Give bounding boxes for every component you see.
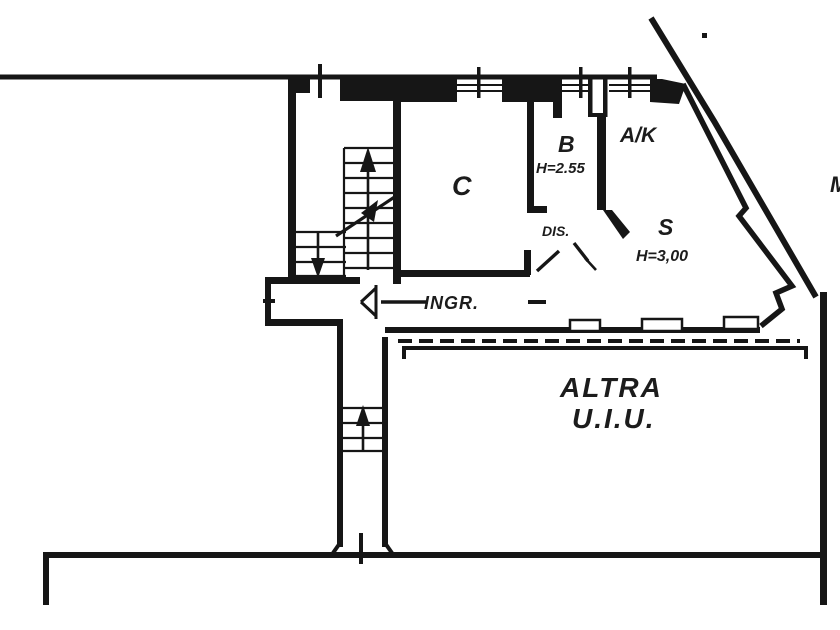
wall-opening-2 [642, 319, 682, 331]
hall-top-wall-left [265, 277, 360, 284]
room-c-bottom-wall [401, 270, 530, 277]
altra-label-line2: U.I.U. [572, 403, 656, 434]
door-leaf-c [537, 251, 559, 271]
window-3-tick [628, 67, 632, 98]
right-outer-wall [820, 292, 827, 605]
edge-letter-fragment: M [830, 172, 840, 197]
corridor-right-wall [382, 337, 388, 547]
window-1 [454, 67, 505, 98]
dis-corner-wall [527, 206, 547, 213]
boundary-dot [702, 33, 707, 38]
facade-corner-to-diagonal [650, 79, 686, 104]
threshold-dash-mid [528, 300, 546, 304]
corridor-left-wall [337, 326, 343, 547]
party-wall [385, 317, 800, 341]
stairwell [296, 79, 401, 284]
room-b-height-note: H=2.55 [536, 160, 585, 177]
site-boundary [0, 18, 816, 297]
wall-opening-3 [724, 317, 758, 329]
s-door-jamb [603, 210, 630, 239]
c-b-dividing-wall [527, 98, 534, 210]
corridor-arrow-up-icon [356, 405, 370, 452]
wall-opening-1 [570, 320, 600, 331]
wall-tick-1 [318, 64, 322, 98]
wall-tick-bottom [359, 533, 363, 564]
facade-step [296, 79, 310, 93]
hall-bottom-wall-left [265, 319, 343, 326]
window-1-tick [477, 67, 481, 98]
hall-top-wall-jamb [393, 277, 401, 284]
b-ak-dividing-wall [597, 117, 606, 210]
outer-walls-bottom-right [43, 292, 827, 605]
stair-arrow-down-icon [311, 233, 325, 278]
room-c-label: C [452, 171, 472, 201]
stair-c-dividing-wall [393, 79, 401, 284]
window-2-tick [579, 67, 583, 98]
room-s-height-note: H=3,00 [636, 248, 688, 265]
facade-block-2 [400, 79, 457, 102]
labels: C B H=2.55 A/K S H=3,00 DIS. INGR. ALTRA… [424, 124, 840, 434]
room-s-label: S [658, 214, 674, 240]
diagonal-inner-wall [683, 84, 792, 326]
entrance-door-icon [361, 285, 428, 319]
corridor-left-flare [333, 543, 340, 553]
other-unit-boundary [404, 348, 806, 359]
top-facade [288, 64, 686, 284]
room-b-label: B [558, 131, 575, 157]
room-c-door-jamb [524, 250, 531, 275]
ingr-label: INGR. [424, 293, 479, 313]
room-c-walls [401, 98, 559, 277]
dis-label: DIS. [542, 223, 569, 239]
floor-plan-canvas: C B H=2.55 A/K S H=3,00 DIS. INGR. ALTRA… [0, 0, 840, 630]
threshold-dash-left [263, 299, 275, 303]
bottom-outer-wall [45, 552, 827, 558]
hallway-walls [265, 277, 401, 326]
window-3 [609, 67, 651, 98]
door-leaf-s [585, 258, 596, 270]
left-outer-wall [288, 79, 296, 284]
facade-block-1 [340, 79, 401, 101]
altra-label-line1: ALTRA [559, 372, 663, 403]
floor-plan-page: C B H=2.55 A/K S H=3,00 DIS. INGR. ALTRA… [0, 0, 840, 630]
window-2 [560, 67, 590, 98]
flue-notch [588, 79, 608, 117]
bottom-left-return-wall [43, 552, 49, 605]
room-ak-label: A/K [619, 124, 658, 147]
corridor-right-flare [385, 543, 392, 553]
